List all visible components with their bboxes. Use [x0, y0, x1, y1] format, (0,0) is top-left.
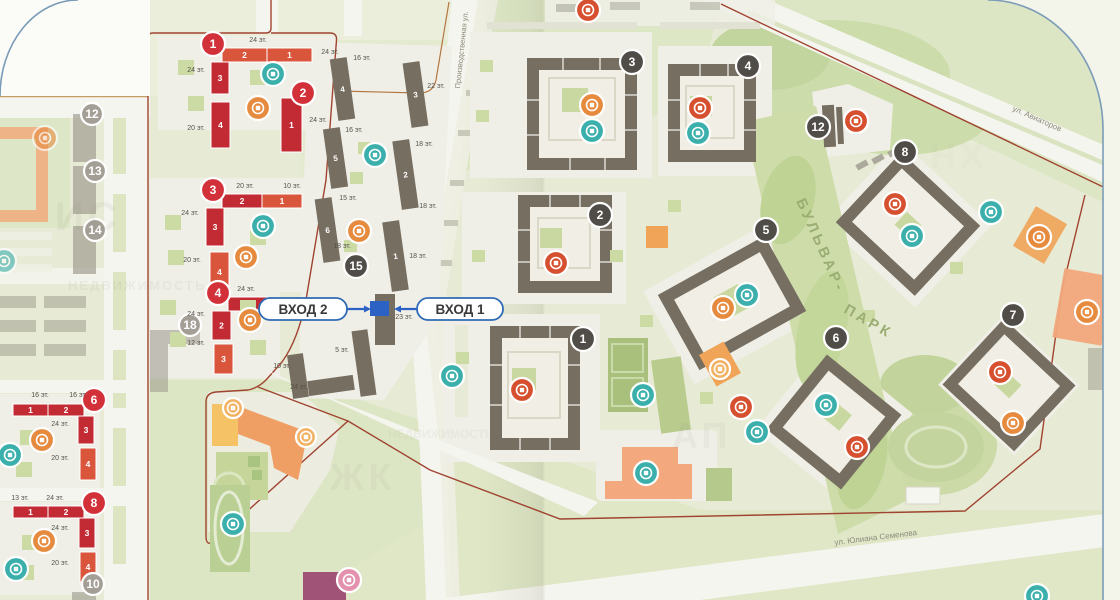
svg-text:24 эт.: 24 эт.: [290, 384, 308, 391]
svg-text:ВХОД 1: ВХОД 1: [435, 302, 485, 317]
svg-text:1: 1: [287, 50, 292, 60]
svg-text:20 эт.: 20 эт.: [51, 560, 69, 567]
svg-text:23 эт.: 23 эт.: [395, 314, 413, 321]
svg-text:НХ: НХ: [930, 135, 988, 176]
svg-text:4: 4: [217, 267, 222, 277]
svg-text:24 эт.: 24 эт.: [181, 210, 199, 217]
svg-text:2: 2: [219, 321, 224, 331]
svg-text:10: 10: [86, 577, 100, 591]
svg-text:5 эт.: 5 эт.: [335, 347, 349, 354]
svg-text:2: 2: [597, 208, 604, 222]
svg-text:13: 13: [88, 164, 102, 178]
svg-text:24 эт.: 24 эт.: [249, 37, 267, 44]
svg-text:24 эт.: 24 эт.: [51, 525, 69, 532]
svg-text:12: 12: [85, 107, 99, 121]
svg-text:12 эт.: 12 эт.: [187, 340, 205, 347]
svg-text:3: 3: [85, 528, 90, 538]
svg-text:18: 18: [183, 318, 197, 332]
svg-text:1: 1: [280, 196, 285, 206]
svg-text:2: 2: [64, 507, 69, 517]
svg-text:2: 2: [242, 50, 247, 60]
svg-text:12: 12: [811, 120, 825, 134]
svg-text:15: 15: [349, 259, 363, 273]
svg-text:1: 1: [210, 37, 217, 51]
svg-text:6: 6: [91, 393, 98, 407]
svg-text:3: 3: [210, 183, 217, 197]
svg-text:10 эт.: 10 эт.: [273, 363, 291, 370]
svg-text:АП: АП: [672, 415, 731, 456]
svg-text:20 эт.: 20 эт.: [236, 183, 254, 190]
svg-text:2: 2: [64, 405, 69, 415]
svg-text:ЖК: ЖК: [329, 457, 396, 499]
svg-text:24 эт.: 24 эт.: [46, 495, 64, 502]
svg-text:22 эт.: 22 эт.: [427, 83, 445, 90]
svg-text:7: 7: [1010, 308, 1017, 322]
svg-text:НЕДВИЖИМОСТЬ: НЕДВИЖИМОСТЬ: [388, 427, 494, 441]
svg-text:ИС: ИС: [55, 195, 121, 239]
svg-text:4: 4: [86, 562, 91, 572]
svg-text:24 эт.: 24 эт.: [237, 286, 255, 293]
svg-text:2: 2: [240, 196, 245, 206]
svg-text:4: 4: [86, 459, 91, 469]
svg-text:24 эт.: 24 эт.: [187, 311, 205, 318]
svg-text:16 эт.: 16 эт.: [31, 392, 49, 399]
svg-text:24 эт.: 24 эт.: [309, 117, 327, 124]
svg-text:20 эт.: 20 эт.: [51, 455, 69, 462]
svg-text:5: 5: [763, 223, 770, 237]
svg-text:1: 1: [28, 507, 33, 517]
svg-text:20 эт.: 20 эт.: [183, 257, 201, 264]
svg-text:18 эт.: 18 эт.: [409, 253, 427, 260]
svg-text:1: 1: [580, 332, 587, 346]
svg-text:18 эт.: 18 эт.: [415, 141, 433, 148]
svg-text:8: 8: [902, 145, 909, 159]
svg-text:3: 3: [213, 222, 218, 232]
svg-text:4: 4: [218, 120, 223, 130]
svg-text:НЕДВИЖИМОСТЬ: НЕДВИЖИМОСТЬ: [68, 278, 206, 293]
svg-text:18 эт.: 18 эт.: [333, 243, 351, 250]
svg-text:3: 3: [221, 354, 226, 364]
svg-text:1: 1: [289, 120, 294, 130]
svg-text:4: 4: [215, 286, 222, 300]
svg-text:16 эт.: 16 эт.: [345, 127, 363, 134]
svg-text:10 эт.: 10 эт.: [283, 183, 301, 190]
svg-text:20 эт.: 20 эт.: [187, 125, 205, 132]
svg-text:4: 4: [745, 59, 752, 73]
svg-text:8: 8: [91, 496, 98, 510]
svg-text:2: 2: [300, 86, 307, 100]
svg-text:3: 3: [629, 55, 636, 69]
svg-text:16 эт.: 16 эт.: [69, 392, 87, 399]
svg-text:3: 3: [84, 425, 89, 435]
svg-text:24 эт.: 24 эт.: [51, 421, 69, 428]
svg-text:1: 1: [28, 405, 33, 415]
svg-text:ВХОД 2: ВХОД 2: [278, 302, 327, 317]
svg-text:6: 6: [833, 331, 840, 345]
svg-text:24 эт.: 24 эт.: [321, 49, 339, 56]
svg-text:13 эт.: 13 эт.: [11, 495, 29, 502]
svg-text:3: 3: [218, 73, 223, 83]
svg-text:15 эт.: 15 эт.: [339, 195, 357, 202]
svg-text:24 эт.: 24 эт.: [187, 67, 205, 74]
svg-text:18 эт.: 18 эт.: [419, 203, 437, 210]
svg-text:16 эт.: 16 эт.: [353, 55, 371, 62]
